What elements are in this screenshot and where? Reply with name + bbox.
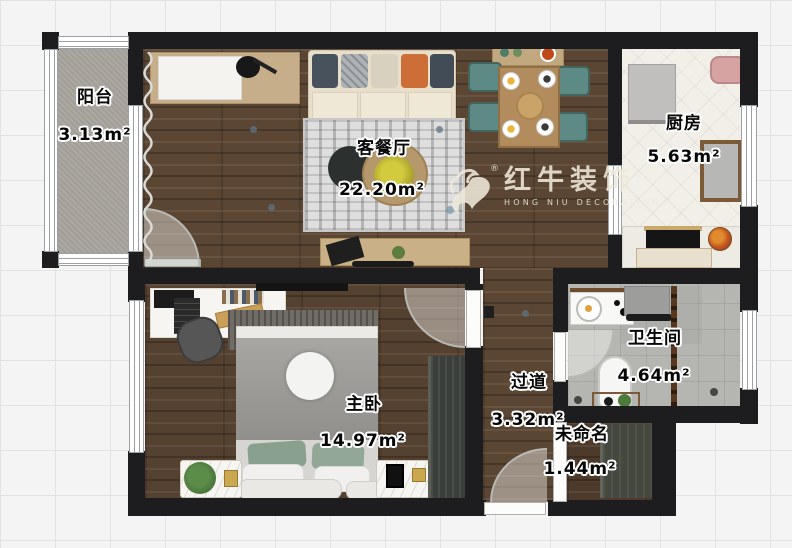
room-label-living-name: 客餐厅 <box>357 134 411 159</box>
picture-frame <box>386 464 404 488</box>
tv-soundbar <box>352 261 414 267</box>
wardrobe <box>428 356 465 502</box>
dining-chair <box>468 102 502 132</box>
wall-right-kitchen-top <box>740 32 758 107</box>
dining-chair <box>468 62 502 92</box>
wall-bedroom-bottom <box>128 498 483 516</box>
bed-bench <box>238 479 342 500</box>
kitchen-base-cabinet <box>636 248 712 268</box>
vent-dot <box>436 126 443 133</box>
wall-kitchen-divider-bottom <box>608 233 622 284</box>
sofa-pillow-beige <box>371 54 398 88</box>
room-label-balcony-name: 阳台 <box>77 83 113 108</box>
shower-panel <box>624 286 670 316</box>
room-label-hallway-area: 3.32m² <box>491 410 564 430</box>
bedroom-tv <box>256 283 348 291</box>
green-cup <box>500 48 509 57</box>
entrance-door-sill[interactable] <box>484 502 546 515</box>
hallway-switch-box <box>484 306 494 318</box>
gold-box <box>412 468 426 482</box>
dinner-plate <box>502 120 520 138</box>
console-plant <box>392 246 405 259</box>
dining-chair <box>556 66 590 96</box>
book-spines <box>222 290 264 304</box>
door-leaf-bathroom[interactable] <box>554 332 566 382</box>
room-label-unnamed-name: 未命名 <box>555 420 609 445</box>
floor-drain <box>710 388 718 396</box>
watermark-brand: 红牛装饰 <box>504 166 661 196</box>
sofa-pillow-pattern <box>341 54 368 88</box>
room-label-unnamed-area: 1.44m² <box>543 459 616 479</box>
dining-centerpiece <box>516 92 544 120</box>
wall-hall-bath-top <box>553 284 568 332</box>
sofa-pillow-dark <box>312 54 338 88</box>
room-label-balcony-area: 3.13m² <box>58 125 131 145</box>
floor-plan-canvas: ® 红牛装饰 HONG NIU DECORATION 阳台 3.13m² 客餐厅… <box>0 0 792 548</box>
vent-dot <box>250 126 257 133</box>
nightstand-plant <box>184 462 216 494</box>
registered-mark: ® <box>490 164 499 174</box>
faucet-dot <box>614 300 620 306</box>
room-balcony-floor[interactable] <box>58 49 129 255</box>
room-label-living-area: 22.20m² <box>339 180 425 200</box>
green-cup <box>513 48 522 57</box>
room-label-hallway-name: 过道 <box>511 368 547 393</box>
window-bedroom-left <box>129 300 144 453</box>
wall-hall-bath-bottom <box>553 380 568 408</box>
window-balcony-bottom <box>58 253 129 266</box>
window-balcony-top <box>58 36 129 49</box>
dinner-plate <box>538 70 556 88</box>
shower-rail <box>671 286 677 412</box>
wall-bedroom-right <box>465 346 483 516</box>
room-label-kitchen-area: 5.63m² <box>647 147 720 167</box>
wall-balcony-corner-tl <box>42 32 59 50</box>
sofa-pillow-dark2 <box>430 54 454 88</box>
wall-top <box>128 32 758 49</box>
watermark-brand-en: HONG NIU DECORATION <box>504 198 661 207</box>
wall-right-middle <box>740 205 758 312</box>
room-label-bathroom-area: 4.64m² <box>617 366 690 386</box>
room-label-bathroom-name: 卫生间 <box>628 324 682 349</box>
bed-round-blanket <box>286 352 334 400</box>
wall-balcony-divider-top <box>128 33 143 105</box>
cooktop <box>646 230 700 249</box>
brand-watermark: ® 红牛装饰 HONG NIU DECORATION <box>446 166 661 218</box>
room-label-kitchen-name: 厨房 <box>666 109 702 134</box>
shower-screen <box>626 314 672 321</box>
wall-kitchen-divider-top <box>608 49 622 167</box>
dinner-plate <box>502 72 520 90</box>
floor-drain <box>574 396 582 404</box>
gold-frame <box>224 470 238 487</box>
sofa-pillow-orange <box>401 54 428 88</box>
room-label-bedroom-name: 主卧 <box>346 390 382 415</box>
rack-item <box>604 397 613 406</box>
dinner-plate <box>536 118 554 136</box>
door-leaf-bedroom[interactable] <box>466 290 481 348</box>
window-balcony-left <box>44 49 58 252</box>
window-kitchen-right <box>741 105 757 207</box>
room-label-bedroom-area: 14.97m² <box>320 431 406 451</box>
sink-drain <box>585 305 592 312</box>
wall-bottom-right <box>548 500 676 516</box>
vent-dot <box>522 310 529 317</box>
vent-dot <box>268 204 275 211</box>
living-sideboard-panel <box>158 56 242 100</box>
window-bathroom-right <box>742 310 757 390</box>
wall-balcony-corner-bl <box>42 251 59 268</box>
wall-middle-left <box>128 268 480 284</box>
curtain-icon <box>141 52 155 266</box>
wall-middle-right <box>553 268 758 284</box>
